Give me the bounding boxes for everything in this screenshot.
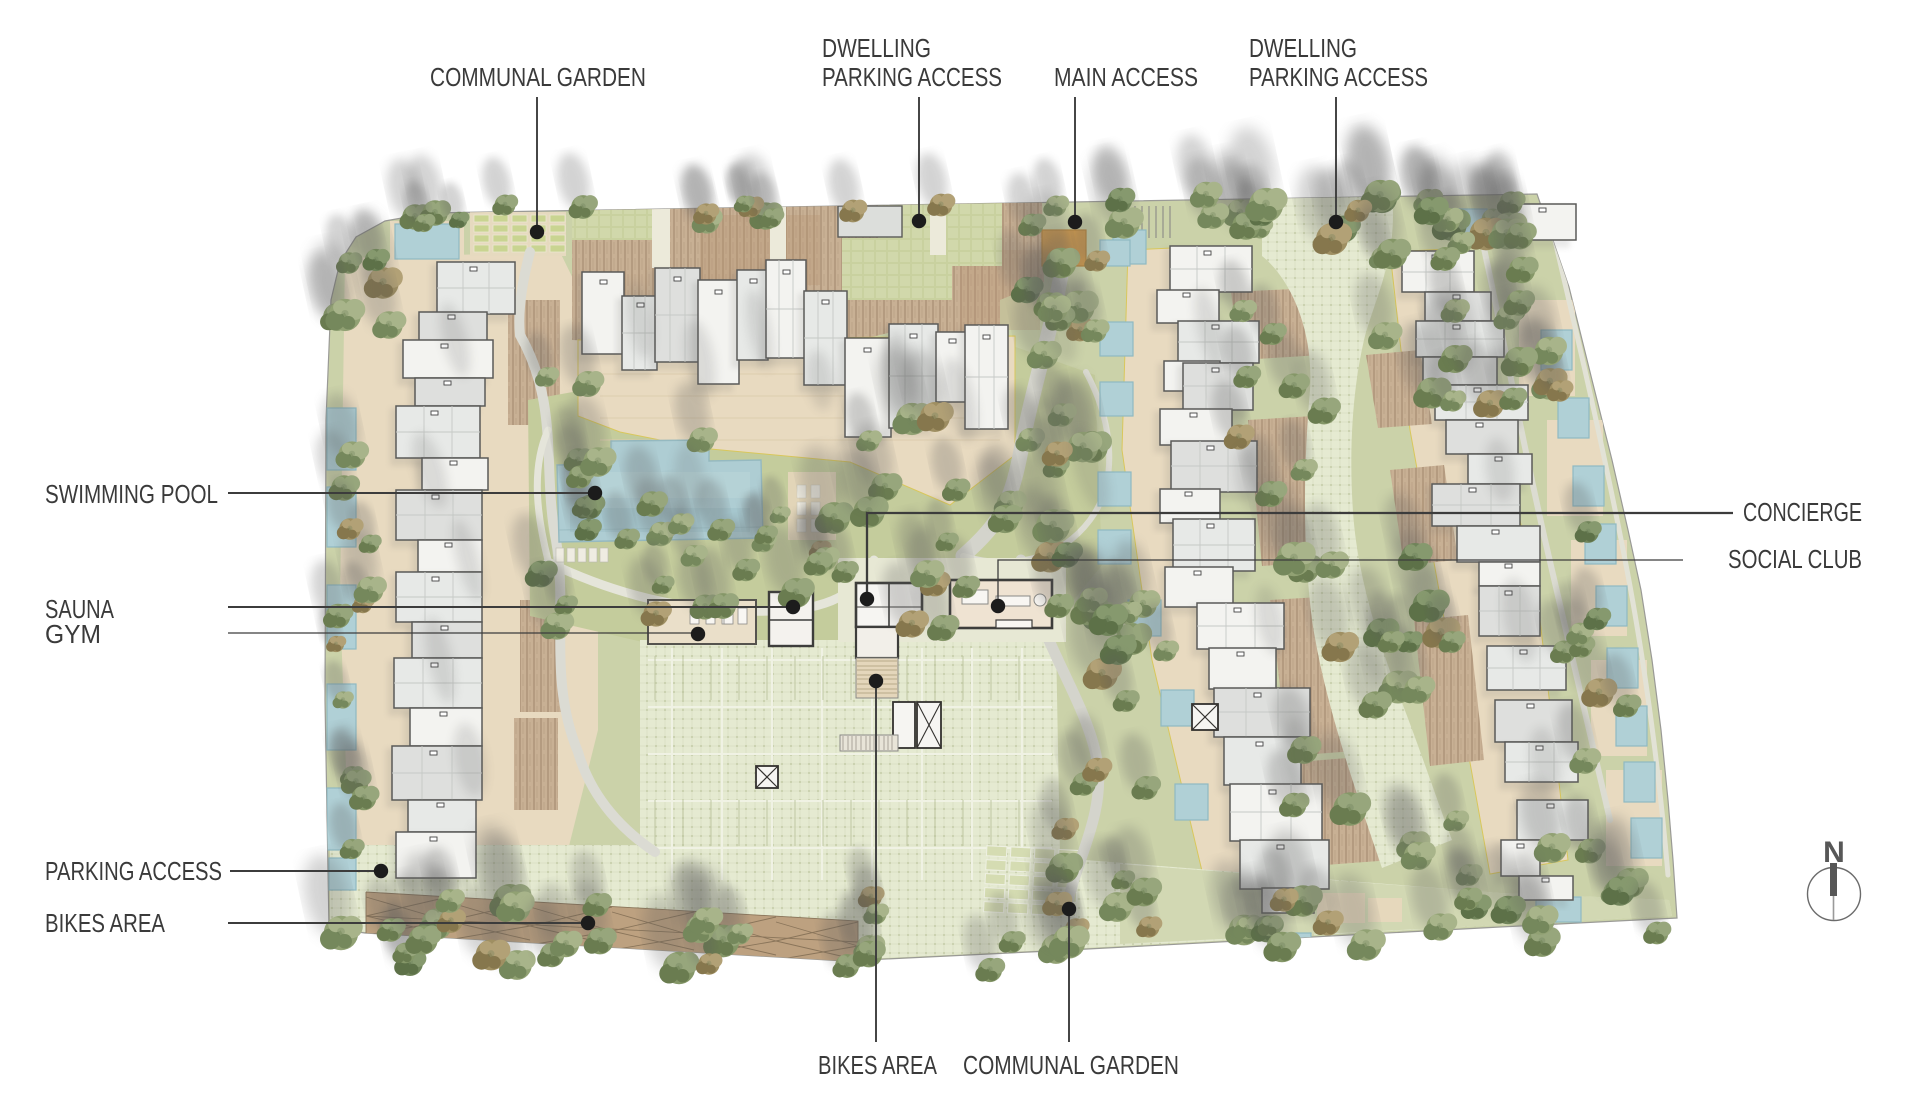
svg-text:DWELLING: DWELLING bbox=[1249, 33, 1357, 63]
svg-text:DWELLING: DWELLING bbox=[822, 33, 931, 63]
svg-text:COMMUNAL GARDEN: COMMUNAL GARDEN bbox=[963, 1050, 1179, 1080]
svg-text:PARKING ACCESS: PARKING ACCESS bbox=[1249, 62, 1428, 92]
svg-text:SOCIAL CLUB: SOCIAL CLUB bbox=[1728, 544, 1862, 574]
svg-text:BIKES AREA: BIKES AREA bbox=[45, 908, 166, 938]
svg-text:MAIN ACCESS: MAIN ACCESS bbox=[1054, 62, 1198, 92]
svg-text:N: N bbox=[1823, 836, 1845, 869]
svg-text:PARKING ACCESS: PARKING ACCESS bbox=[45, 856, 222, 886]
svg-text:GYM: GYM bbox=[45, 619, 101, 649]
svg-text:COMMUNAL GARDEN: COMMUNAL GARDEN bbox=[430, 62, 646, 92]
svg-text:CONCIERGE: CONCIERGE bbox=[1743, 497, 1862, 527]
svg-text:SWIMMING POOL: SWIMMING POOL bbox=[45, 479, 218, 509]
svg-text:BIKES AREA: BIKES AREA bbox=[818, 1050, 938, 1080]
svg-text:PARKING ACCESS: PARKING ACCESS bbox=[822, 62, 1002, 92]
